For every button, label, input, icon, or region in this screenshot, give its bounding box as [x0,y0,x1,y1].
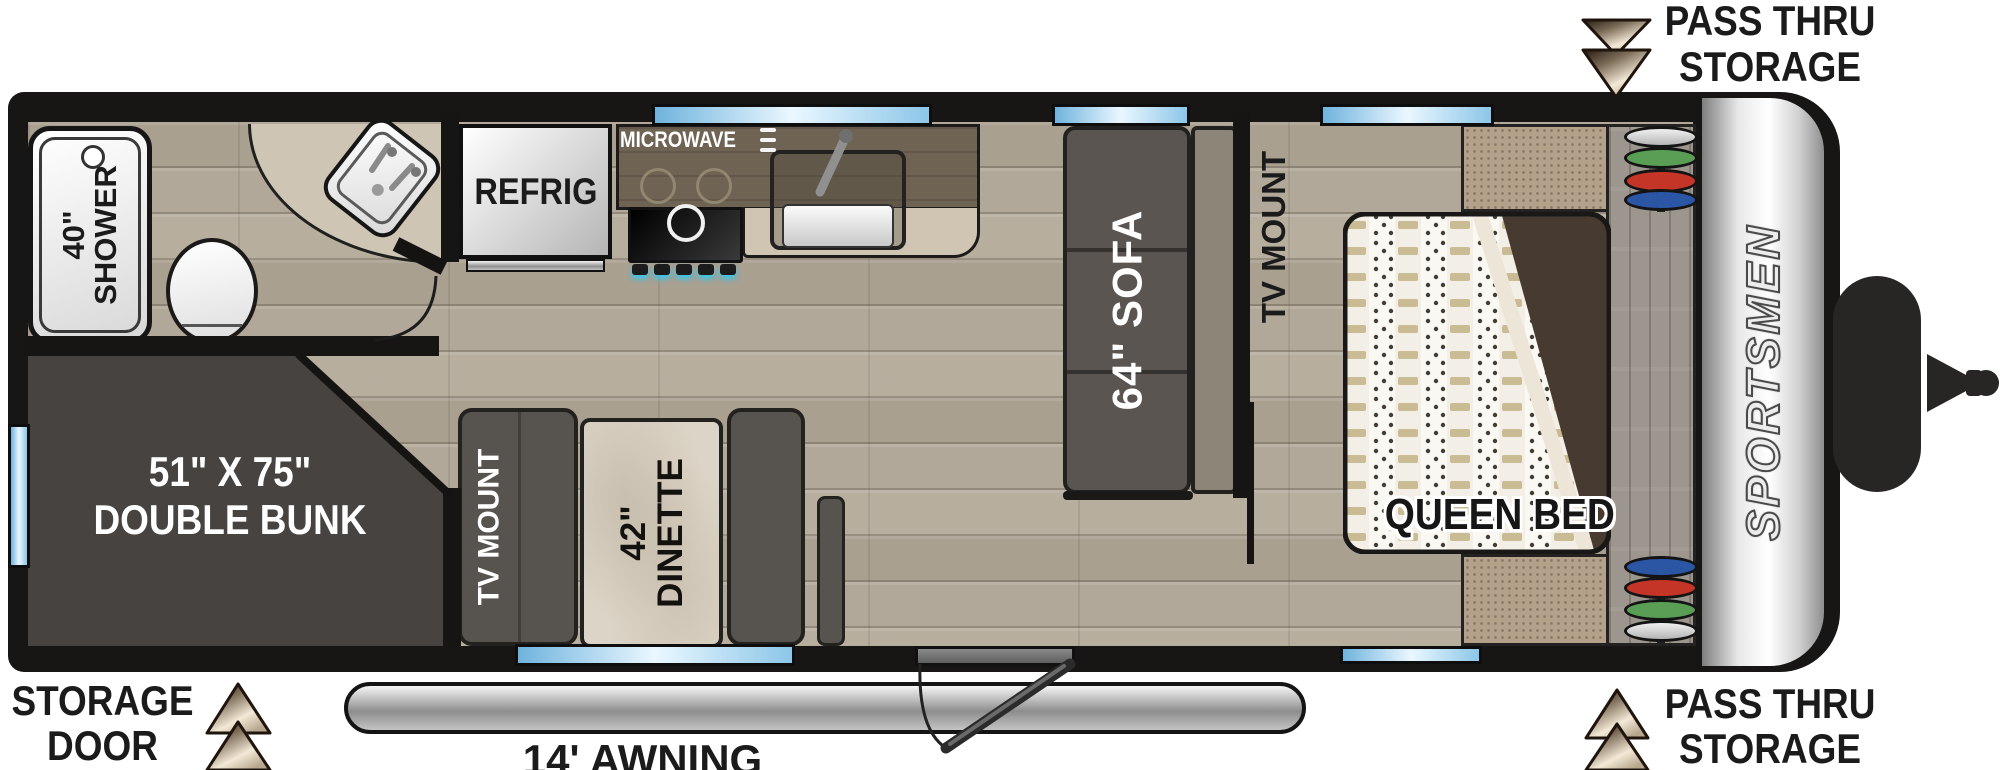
hitch-a-frame [1927,354,1968,412]
utensil-icon [760,128,776,132]
kitchen-faucet-base [839,129,853,143]
overlay-graphics [0,0,2000,770]
entry-door-arc [920,664,946,748]
bunk-diagonal-wall [298,354,449,494]
bath-faucet-knob [411,167,421,177]
utensil-icon [760,148,776,152]
bath-faucet [372,146,388,170]
entry-door-leaf-highlight [950,666,1064,744]
bath-faucet [392,166,412,188]
bath-faucet-knob [387,147,397,157]
kitchen-faucet [820,136,846,192]
pass-thru-storage-bottom-label: PASS THRU STORAGE [1630,681,1910,770]
bath-door-arc [374,276,436,340]
bath-angled-wall [396,244,444,268]
utensil-icon [760,138,776,142]
awning-label: 14' AWNING [470,736,815,770]
pass-thru-storage-top-label: PASS THRU STORAGE [1630,0,1910,90]
storage-door-label: STORAGE DOOR [0,678,210,768]
hitch-coupler [1973,370,1999,396]
floorplan-canvas: SPORTSMEN 40" SHOWER REFRIG MICROWAVE [0,0,2000,770]
